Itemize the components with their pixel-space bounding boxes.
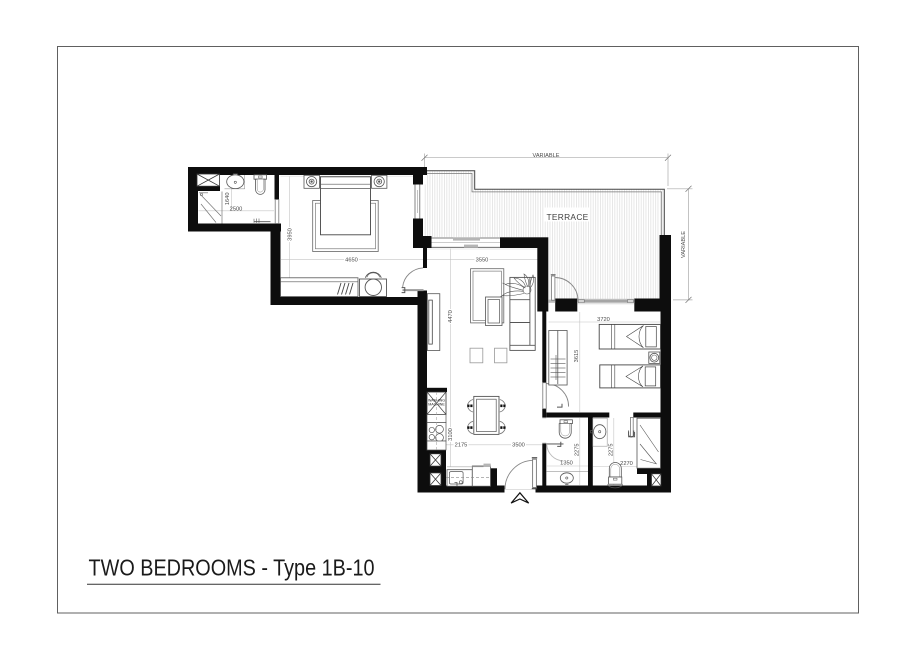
svg-text:1640: 1640 bbox=[225, 192, 231, 205]
svg-text:1350: 1350 bbox=[560, 460, 573, 466]
svg-text:VARIABLE: VARIABLE bbox=[533, 153, 560, 159]
svg-text:4470: 4470 bbox=[448, 310, 454, 323]
svg-text:MACHINE: MACHINE bbox=[428, 403, 445, 407]
svg-text:2175: 2175 bbox=[455, 443, 468, 449]
svg-text:2275: 2275 bbox=[609, 443, 615, 456]
svg-text:3500: 3500 bbox=[512, 443, 525, 449]
svg-text:3550: 3550 bbox=[476, 257, 489, 263]
svg-text:2275: 2275 bbox=[575, 443, 581, 456]
svg-text:3615: 3615 bbox=[574, 350, 580, 363]
svg-text:TERRACE: TERRACE bbox=[546, 212, 588, 222]
svg-text:3950: 3950 bbox=[287, 228, 293, 241]
svg-text:2270: 2270 bbox=[620, 461, 633, 467]
svg-text:VARIABLE: VARIABLE bbox=[681, 231, 687, 258]
svg-text:2500: 2500 bbox=[230, 206, 243, 212]
svg-text:3720: 3720 bbox=[597, 317, 610, 323]
svg-text:4650: 4650 bbox=[345, 257, 358, 263]
svg-text:3100: 3100 bbox=[448, 428, 454, 441]
svg-text:TWO BEDROOMS - Type 1B-10: TWO BEDROOMS - Type 1B-10 bbox=[89, 554, 375, 580]
